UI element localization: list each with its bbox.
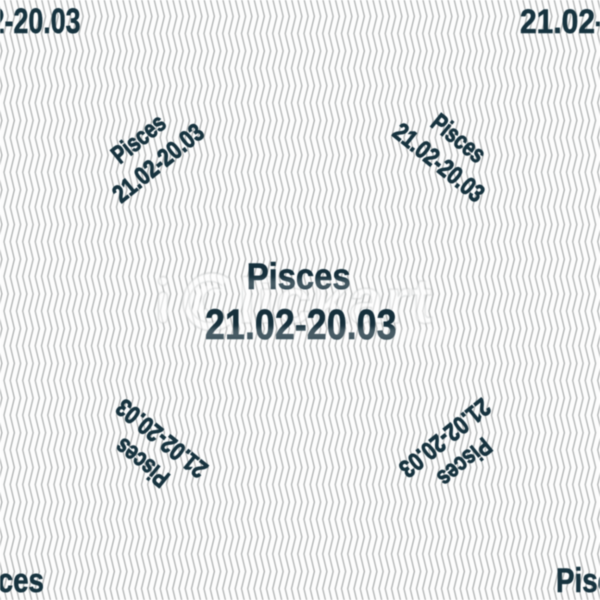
svg-text:Pisces: Pisces <box>247 256 351 297</box>
svg-text:21.02-20.03: 21.02-20.03 <box>205 302 397 349</box>
svg-text:21.02-20.03: 21.02-20.03 <box>0 2 81 41</box>
svg-text:21.02-20.03: 21.02-20.03 <box>520 3 600 41</box>
svg-text:Pisces: Pisces <box>556 562 600 600</box>
svg-text:Pisces: Pisces <box>0 562 44 600</box>
